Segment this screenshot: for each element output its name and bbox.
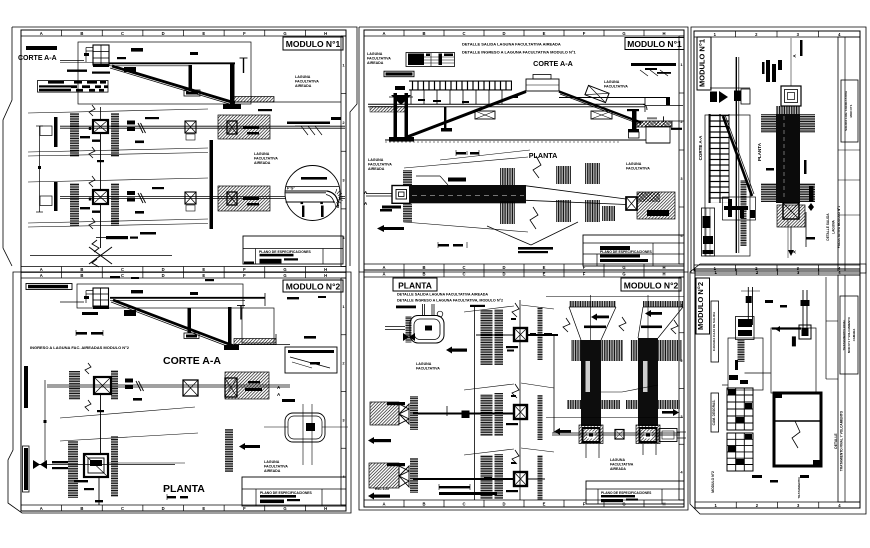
svg-text:LAGUNA: LAGUNA bbox=[368, 158, 384, 162]
svg-text:D: D bbox=[162, 273, 165, 278]
svg-text:D: D bbox=[162, 506, 165, 511]
svg-text:C: C bbox=[121, 273, 124, 278]
svg-text:DETALLE INGRESO A LAGUNA FACUL: DETALLE INGRESO A LAGUNA FACULTATIVA MOD… bbox=[462, 50, 577, 55]
svg-text:PLANTA: PLANTA bbox=[398, 281, 432, 291]
svg-text:LAGUNA: LAGUNA bbox=[367, 52, 383, 56]
svg-text:F: F bbox=[243, 506, 246, 511]
svg-text:MODULO N°2: MODULO N°2 bbox=[286, 282, 341, 292]
svg-text:E: E bbox=[202, 506, 205, 511]
svg-text:B: B bbox=[422, 271, 425, 276]
svg-text:B: B bbox=[422, 265, 425, 270]
svg-text:B: B bbox=[80, 267, 83, 272]
svg-text:FACULTATIVA: FACULTATIVA bbox=[368, 163, 392, 167]
svg-text:PLANO DE ESPECIFICACIONES: PLANO DE ESPECIFICACIONES bbox=[600, 250, 653, 254]
svg-text:C: C bbox=[462, 271, 465, 276]
svg-text:DETALLE: DETALLE bbox=[834, 433, 838, 449]
svg-text:D: D bbox=[502, 31, 505, 36]
svg-text:AIREADA: AIREADA bbox=[367, 61, 384, 65]
svg-text:LAGUNA: LAGUNA bbox=[832, 219, 836, 233]
svg-text:G: G bbox=[283, 267, 286, 272]
svg-text:B: B bbox=[80, 506, 83, 511]
svg-text:INGRESO A LAGUNA FAC. AIREADAS: INGRESO A LAGUNA FAC. AIREADAS MODULO N°… bbox=[30, 345, 130, 350]
svg-text:FACULTATIVA: FACULTATIVA bbox=[604, 85, 628, 89]
svg-text:AIREADA: AIREADA bbox=[610, 467, 626, 471]
svg-text:B: B bbox=[422, 31, 425, 36]
svg-text:B: B bbox=[80, 31, 83, 36]
svg-text:D: D bbox=[502, 265, 505, 270]
svg-text:MOD N°1 Y VOLCAMIENTO: MOD N°1 Y VOLCAMIENTO bbox=[847, 316, 851, 353]
svg-text:FACULTATIVA: FACULTATIVA bbox=[626, 167, 650, 171]
svg-text:F: F bbox=[243, 267, 246, 272]
svg-text:TRATAMIENTO FINAL: TRATAMIENTO FINAL bbox=[842, 319, 846, 350]
svg-text:D: D bbox=[162, 267, 165, 272]
svg-text:SALIDA LAG. FACULTATIVA: SALIDA LAG. FACULTATIVA bbox=[844, 90, 848, 131]
svg-text:G: G bbox=[283, 273, 286, 278]
svg-text:H: H bbox=[662, 265, 665, 270]
svg-text:PLANTA: PLANTA bbox=[757, 142, 762, 161]
svg-text:F: F bbox=[583, 501, 586, 506]
svg-text:A: A bbox=[382, 501, 385, 506]
svg-text:CORTE A-A: CORTE A-A bbox=[698, 135, 703, 161]
svg-text:C: C bbox=[462, 31, 465, 36]
svg-text:LAGUNA: LAGUNA bbox=[264, 460, 280, 464]
svg-text:C: C bbox=[462, 265, 465, 270]
svg-text:A: A bbox=[40, 506, 43, 511]
svg-text:D: D bbox=[502, 501, 505, 506]
svg-text:E: E bbox=[543, 501, 546, 506]
svg-text:LAGUNA: LAGUNA bbox=[254, 152, 270, 156]
svg-text:AIREADA: AIREADA bbox=[254, 161, 271, 165]
svg-text:FACULTATIVA: FACULTATIVA bbox=[416, 367, 440, 371]
svg-text:FACULTATIVA MODULO N°1: FACULTATIVA MODULO N°1 bbox=[837, 206, 841, 249]
svg-text:AIREADA: AIREADA bbox=[295, 84, 312, 88]
svg-text:CAM. DESGRAS.: CAM. DESGRAS. bbox=[712, 400, 716, 426]
svg-text:G: G bbox=[622, 31, 625, 36]
svg-text:A: A bbox=[382, 31, 385, 36]
svg-text:C: C bbox=[121, 31, 124, 36]
svg-text:TRATAMIENTO FINAL Y VOLCAMIENT: TRATAMIENTO FINAL Y VOLCAMIENTO bbox=[840, 410, 844, 471]
svg-text:LAGUNA: LAGUNA bbox=[295, 75, 311, 79]
svg-text:E: E bbox=[202, 273, 205, 278]
svg-text:LAGUNA: LAGUNA bbox=[604, 80, 620, 84]
svg-text:MODULO N°1: MODULO N°1 bbox=[286, 39, 341, 49]
svg-text:TRATAMIENTO: TRATAMIENTO bbox=[797, 477, 801, 499]
svg-text:E: E bbox=[543, 271, 546, 276]
svg-text:H: H bbox=[324, 506, 327, 511]
svg-text:H: H bbox=[324, 31, 327, 36]
svg-text:B: B bbox=[422, 501, 425, 506]
svg-text:FACULTATIVA: FACULTATIVA bbox=[610, 462, 634, 466]
svg-text:PLANO DE ESPECIFICACIONES: PLANO DE ESPECIFICACIONES bbox=[260, 491, 313, 495]
svg-text:DETALLE SALIDA: DETALLE SALIDA bbox=[826, 213, 830, 241]
svg-text:A: A bbox=[40, 267, 43, 272]
svg-text:CORTE A-A: CORTE A-A bbox=[163, 355, 221, 367]
svg-text:FACULTATIVA: FACULTATIVA bbox=[295, 80, 319, 84]
svg-text:PLANTA: PLANTA bbox=[163, 483, 205, 495]
svg-text:PLANTA: PLANTA bbox=[529, 151, 558, 160]
svg-text:MODULO N°2: MODULO N°2 bbox=[711, 471, 715, 493]
svg-text:MOD N°1: MOD N°1 bbox=[849, 104, 853, 117]
svg-text:FACULTATIVA: FACULTATIVA bbox=[367, 57, 391, 61]
svg-text:A: A bbox=[40, 31, 43, 36]
svg-text:DETALLE SALIDA LAGUNA FACULTAT: DETALLE SALIDA LAGUNA FACULTATIVA AIREAD… bbox=[397, 293, 488, 297]
svg-text:F: F bbox=[583, 271, 586, 276]
svg-text:H: H bbox=[324, 267, 327, 272]
svg-text:AIREADA: AIREADA bbox=[264, 469, 281, 473]
svg-text:PLANO DE ESPECIFICACIONES: PLANO DE ESPECIFICACIONES bbox=[259, 250, 312, 254]
svg-text:H: H bbox=[324, 273, 327, 278]
svg-text:LAGUNA: LAGUNA bbox=[416, 362, 432, 366]
svg-text:E: E bbox=[202, 31, 205, 36]
svg-text:LAGUNA: LAGUNA bbox=[626, 162, 642, 166]
svg-text:C: C bbox=[462, 501, 465, 506]
svg-text:G: G bbox=[283, 31, 286, 36]
svg-text:FACULTATIVA: FACULTATIVA bbox=[264, 465, 288, 469]
svg-text:MODULO N°1: MODULO N°1 bbox=[627, 39, 682, 49]
svg-text:F: F bbox=[583, 31, 586, 36]
svg-text:H: H bbox=[662, 31, 665, 36]
svg-text:DETALLE INGRESO A LAGUNA FACUL: DETALLE INGRESO A LAGUNA FACULTATIVA, MO… bbox=[397, 299, 503, 303]
svg-text:B: B bbox=[80, 273, 83, 278]
svg-text:PLANO DE ESPECIFICACIONES: PLANO DE ESPECIFICACIONES bbox=[601, 491, 652, 495]
svg-text:A: A bbox=[382, 271, 385, 276]
svg-text:CAMARA: CAMARA bbox=[852, 329, 856, 341]
svg-text:CORTE A-A: CORTE A-A bbox=[533, 59, 573, 68]
svg-text:DETALLE SALIDA LAGUNA FACULTAT: DETALLE SALIDA LAGUNA FACULTATIVA AIREAD… bbox=[462, 42, 561, 47]
svg-text:AIREADA: AIREADA bbox=[368, 167, 385, 171]
svg-text:FACULTATIVA: FACULTATIVA bbox=[254, 157, 278, 161]
svg-text:G: G bbox=[622, 265, 625, 270]
svg-text:CAMARA CAJA DE SALIDA: CAMARA CAJA DE SALIDA bbox=[712, 311, 716, 351]
svg-text:E: E bbox=[202, 267, 205, 272]
svg-text:A: A bbox=[40, 273, 43, 278]
svg-text:CORTE A-A: CORTE A-A bbox=[18, 55, 57, 62]
svg-text:F: F bbox=[243, 273, 246, 278]
svg-text:F°G°: F°G° bbox=[287, 187, 295, 191]
svg-text:MODULO N°2: MODULO N°2 bbox=[696, 282, 705, 330]
svg-text:MODULO N°1: MODULO N°1 bbox=[698, 39, 707, 87]
svg-text:ESC 1:25: ESC 1:25 bbox=[375, 487, 389, 491]
svg-text:G: G bbox=[283, 506, 286, 511]
svg-text:E: E bbox=[543, 31, 546, 36]
svg-text:A: A bbox=[382, 265, 385, 270]
svg-text:G: G bbox=[622, 271, 625, 276]
svg-text:C: C bbox=[121, 267, 124, 272]
svg-text:MODULO N°2: MODULO N°2 bbox=[624, 281, 679, 291]
svg-text:F: F bbox=[243, 31, 246, 36]
svg-text:H: H bbox=[662, 271, 665, 276]
svg-text:D: D bbox=[162, 31, 165, 36]
svg-text:E: E bbox=[543, 265, 546, 270]
svg-text:C: C bbox=[121, 506, 124, 511]
svg-text:D: D bbox=[502, 271, 505, 276]
svg-text:LAGUNA: LAGUNA bbox=[610, 458, 625, 462]
